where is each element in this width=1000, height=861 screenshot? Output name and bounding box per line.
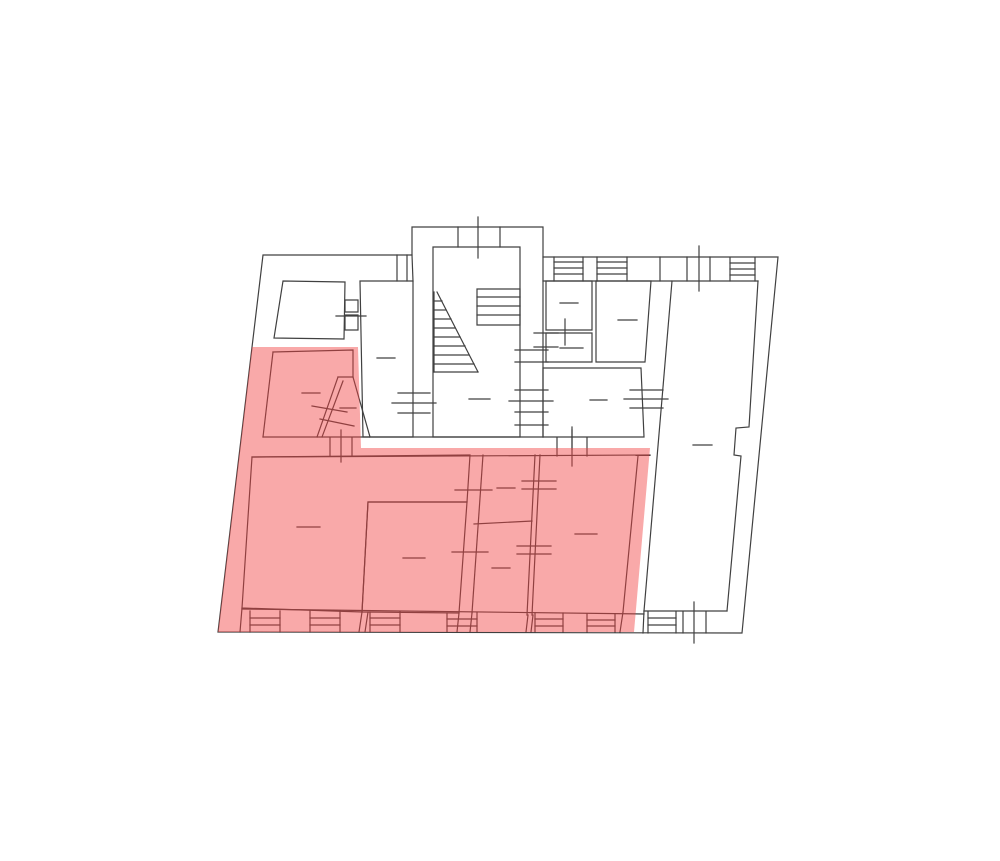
floor-plan-canvas	[0, 0, 1000, 861]
floorplan-svg	[0, 0, 1000, 861]
plan-background	[0, 0, 1000, 861]
